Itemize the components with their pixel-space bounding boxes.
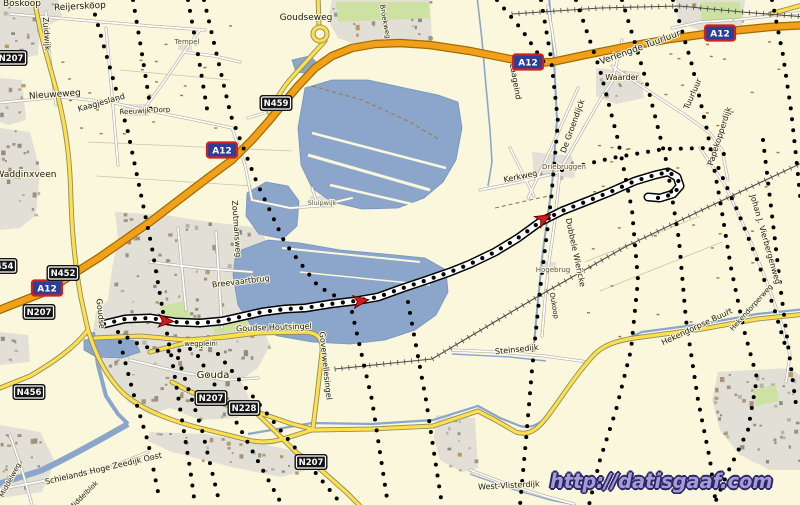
track-point	[628, 200, 632, 204]
track-point	[680, 277, 684, 281]
map-label: wegplein	[184, 340, 216, 348]
track-point	[736, 299, 740, 303]
track-point	[639, 61, 643, 65]
track-point	[139, 194, 143, 198]
track-point	[200, 429, 204, 433]
track-point	[437, 484, 441, 488]
track-point	[293, 446, 297, 450]
track-point	[601, 448, 605, 452]
track-point	[279, 429, 283, 433]
track-point	[551, 74, 555, 78]
track-point	[680, 30, 684, 34]
track-point	[664, 157, 668, 161]
track-point	[628, 353, 632, 357]
track-point	[406, 300, 410, 304]
track-point	[193, 408, 197, 412]
track-point	[724, 234, 728, 238]
track-point	[367, 385, 371, 389]
track-point	[769, 299, 773, 303]
svg-text:A12: A12	[37, 284, 57, 294]
track-point	[731, 277, 735, 281]
track-point	[152, 258, 156, 262]
track-point	[768, 193, 772, 197]
track-point	[635, 152, 639, 156]
track-point	[145, 345, 149, 349]
track-point	[794, 400, 798, 404]
track-point	[135, 341, 139, 345]
map-label: Tempel	[174, 38, 200, 46]
track-point	[245, 440, 249, 444]
track-point	[267, 207, 271, 211]
svg-text:N207: N207	[0, 54, 24, 64]
track-point	[791, 378, 795, 382]
road-shield-N207: N207	[0, 50, 28, 66]
track-point	[281, 237, 285, 241]
track-point	[143, 74, 147, 78]
track-point	[518, 501, 522, 505]
track-point	[205, 450, 209, 454]
track-point	[713, 494, 717, 498]
map-label: Waarder	[605, 73, 639, 82]
track-point	[96, 23, 100, 27]
track-point	[632, 320, 636, 324]
track-point	[544, 238, 548, 242]
track-point	[180, 418, 184, 422]
track-point	[552, 85, 556, 89]
track-point	[190, 20, 194, 24]
track-point	[142, 63, 146, 67]
track-point	[370, 396, 374, 400]
track-point	[214, 52, 218, 56]
track-point	[550, 184, 554, 188]
track-point	[550, 63, 554, 67]
track-point	[145, 85, 149, 89]
map-svg: BoskoopReijerskoopZuidwijkNieuwewegKaagj…	[0, 0, 800, 505]
track-point	[626, 19, 630, 23]
track-point	[323, 288, 327, 292]
track-point	[102, 44, 106, 48]
track-point	[138, 414, 142, 418]
track-point	[418, 365, 422, 369]
track-point	[196, 354, 200, 358]
track-point	[623, 9, 627, 13]
track-point	[431, 441, 435, 445]
track-point	[365, 374, 369, 378]
track-point	[169, 353, 173, 357]
track-point	[543, 249, 547, 253]
track-point	[176, 356, 180, 360]
track-point	[152, 468, 156, 472]
track-point	[216, 493, 220, 497]
track-point	[783, 324, 787, 328]
track-point	[531, 358, 535, 362]
track-point	[208, 461, 212, 465]
track-point	[722, 223, 726, 227]
track-point	[509, 15, 513, 19]
track-point	[674, 9, 678, 13]
track-point	[198, 63, 202, 67]
track-point	[782, 313, 786, 317]
track-point	[762, 149, 766, 153]
track-point	[171, 364, 175, 368]
track-point	[624, 154, 628, 158]
track-point	[748, 417, 752, 421]
track-point	[725, 186, 729, 190]
track-point	[203, 440, 207, 444]
map-label: Goudseweg	[280, 13, 333, 23]
track-point	[759, 268, 763, 272]
track-point	[791, 128, 795, 132]
track-point	[525, 424, 529, 428]
track-point	[683, 310, 687, 314]
track-point	[205, 106, 209, 110]
track-point	[704, 440, 708, 444]
track-point	[789, 367, 793, 371]
track-point	[213, 483, 217, 487]
track-point	[439, 495, 443, 499]
track-point	[782, 63, 786, 67]
track-point	[197, 419, 201, 423]
track-point	[196, 52, 200, 56]
track-point	[631, 331, 635, 335]
track-point	[203, 96, 207, 100]
track-point	[774, 20, 778, 24]
track-point	[541, 9, 545, 13]
track-point	[796, 172, 800, 176]
track-point	[321, 480, 325, 484]
track-point	[622, 167, 626, 171]
track-point	[124, 361, 128, 365]
track-point	[524, 435, 528, 439]
track-point	[200, 74, 204, 78]
track-point	[175, 386, 179, 390]
track-point	[530, 369, 534, 373]
track-point	[612, 124, 616, 128]
track-point	[754, 374, 758, 378]
track-point	[785, 335, 789, 339]
track-point	[792, 139, 796, 143]
track-point	[773, 309, 777, 313]
svg-text:N459: N459	[264, 99, 289, 109]
track-point	[251, 449, 255, 453]
track-point	[678, 255, 682, 259]
track-point	[683, 40, 687, 44]
track-point	[588, 40, 592, 44]
track-point	[416, 354, 420, 358]
track-point	[265, 412, 269, 416]
track-point	[697, 93, 701, 97]
track-point	[116, 330, 120, 334]
track-point	[653, 114, 657, 118]
track-point	[189, 473, 193, 477]
track-point	[192, 30, 196, 34]
track-point	[770, 214, 774, 218]
map-label: Driebruggen	[542, 163, 586, 171]
track-point	[202, 364, 206, 368]
track-point	[603, 158, 607, 162]
track-point	[690, 61, 694, 65]
track-point	[634, 298, 638, 302]
track-point	[626, 189, 630, 193]
road-shield-N207: N207	[23, 304, 56, 320]
track-point	[256, 459, 260, 463]
track-point	[244, 386, 248, 390]
track-point	[784, 74, 788, 78]
track-point	[161, 310, 165, 314]
track-point	[605, 437, 609, 441]
track-point	[608, 427, 612, 431]
track-point	[251, 395, 255, 399]
track-point	[137, 183, 141, 187]
track-point	[238, 136, 242, 140]
track-point	[427, 419, 431, 423]
watermark: http://datisgaaf.com	[550, 469, 793, 493]
track-point	[160, 302, 164, 306]
track-point	[545, 227, 549, 231]
track-point	[554, 140, 558, 144]
track-point	[328, 488, 332, 492]
track-point	[673, 211, 677, 215]
track-point	[529, 380, 533, 384]
track-point	[132, 393, 136, 397]
track-point	[156, 280, 160, 284]
track-point	[601, 82, 605, 86]
track-point	[240, 430, 244, 434]
track-point	[701, 146, 705, 150]
track-point	[536, 304, 540, 308]
track-point	[526, 413, 530, 417]
map-label: Sluipwijk	[308, 199, 337, 207]
track-point	[272, 420, 276, 424]
track-point	[502, 6, 506, 10]
track-point	[587, 501, 591, 505]
track-point	[185, 451, 189, 455]
track-point	[147, 96, 151, 100]
track-point	[376, 439, 380, 443]
track-point	[105, 55, 109, 59]
track-point	[631, 221, 635, 225]
track-point	[755, 257, 759, 261]
map-label: Hogebrug	[536, 266, 571, 274]
road-shield-A12: A12	[32, 281, 62, 296]
track-point	[774, 247, 778, 251]
track-point	[521, 468, 525, 472]
track-point	[301, 264, 305, 268]
track-point	[523, 446, 527, 450]
track-point	[766, 182, 770, 186]
track-point	[717, 191, 721, 195]
track-point	[787, 95, 791, 99]
track-point	[230, 116, 234, 120]
track-point	[751, 363, 755, 367]
track-point	[720, 212, 724, 216]
track-point	[156, 349, 160, 353]
track-point	[693, 375, 697, 379]
road-shield-N456: N456	[13, 384, 46, 400]
track-point	[523, 32, 527, 36]
track-point	[141, 204, 145, 208]
track-point	[294, 255, 298, 259]
map-label: Boskoop	[3, 0, 41, 9]
track-point	[553, 96, 557, 100]
track-point	[527, 402, 531, 406]
track-point	[99, 34, 103, 38]
track-point	[373, 418, 377, 422]
track-point	[114, 87, 118, 91]
track-point	[676, 233, 680, 237]
track-point	[375, 428, 379, 432]
track-point	[702, 115, 706, 119]
track-point	[133, 9, 137, 13]
track-point	[381, 472, 385, 476]
track-point	[166, 349, 170, 353]
track-point	[158, 291, 162, 295]
track-point	[183, 377, 187, 381]
track-point	[599, 71, 603, 75]
track-point	[314, 471, 318, 475]
track-point	[154, 478, 158, 482]
track-point	[634, 254, 638, 258]
track-point	[355, 331, 359, 335]
track-point	[737, 448, 741, 452]
track-point	[792, 389, 796, 393]
track-point	[614, 155, 618, 159]
track-point	[732, 457, 736, 461]
track-point	[771, 225, 775, 229]
track-point	[751, 247, 755, 251]
track-point	[380, 461, 384, 465]
track-point	[150, 248, 154, 252]
track-point	[707, 136, 711, 140]
track-point	[776, 30, 780, 34]
track-point	[779, 41, 783, 45]
track-point	[615, 406, 619, 410]
track-point	[661, 146, 665, 150]
track-point	[422, 387, 426, 391]
track-point	[746, 428, 750, 432]
track-point	[727, 256, 731, 260]
track-point	[682, 299, 686, 303]
track-point	[201, 85, 205, 89]
track-point	[548, 52, 552, 56]
track-point	[702, 429, 706, 433]
track-point	[534, 326, 538, 330]
track-point	[246, 157, 250, 161]
road-shield-N207: N207	[195, 390, 228, 406]
track-point	[192, 494, 196, 498]
track-point	[242, 147, 246, 151]
track-point	[671, 200, 675, 204]
track-point	[642, 72, 646, 76]
track-point	[108, 66, 112, 70]
track-point	[420, 376, 424, 380]
track-point	[743, 227, 747, 231]
track-point	[674, 222, 678, 226]
track-point	[788, 356, 792, 360]
track-point	[667, 179, 671, 183]
track-point	[545, 31, 549, 35]
track-point	[781, 52, 785, 56]
track-point	[765, 171, 769, 175]
track-point	[592, 50, 596, 54]
track-point	[286, 437, 290, 441]
svg-text:N207: N207	[27, 308, 52, 318]
track-point	[539, 282, 543, 286]
road-shield-A12: A12	[513, 55, 543, 70]
track-point	[145, 435, 149, 439]
track-point	[679, 147, 683, 151]
track-point	[681, 288, 685, 292]
track-point	[543, 20, 547, 24]
track-point	[190, 398, 194, 402]
track-point	[362, 364, 366, 368]
track-point	[111, 76, 115, 80]
svg-text:N207: N207	[299, 458, 324, 468]
track-point	[261, 469, 265, 473]
svg-text:N207: N207	[199, 394, 224, 404]
track-point	[533, 337, 537, 341]
track-point	[636, 276, 640, 280]
track-point	[620, 156, 624, 160]
track-point	[230, 369, 234, 373]
track-point	[156, 489, 160, 493]
track-point	[688, 342, 692, 346]
svg-text:N452: N452	[51, 269, 76, 279]
track-point	[776, 320, 780, 324]
track-point	[764, 160, 768, 164]
track-point	[694, 386, 698, 390]
track-point	[581, 19, 585, 23]
track-point	[234, 126, 238, 130]
track-point	[620, 385, 624, 389]
track-point	[147, 446, 151, 450]
track-point	[216, 352, 220, 356]
track-point	[263, 197, 267, 201]
track-point	[188, 9, 192, 13]
track-point	[429, 430, 433, 434]
track-point	[314, 281, 318, 285]
map-canvas[interactable]: BoskoopReijerskoopZuidwijkNieuwewegKaagj…	[0, 0, 800, 505]
track-point	[535, 315, 539, 319]
track-point	[734, 206, 738, 210]
track-point	[553, 151, 557, 155]
track-point	[646, 150, 650, 154]
track-point	[713, 169, 717, 173]
track-point	[212, 41, 216, 45]
track-point	[167, 342, 171, 346]
track-point	[529, 41, 533, 45]
svg-text:A12: A12	[518, 58, 538, 68]
track-point	[548, 205, 552, 209]
track-point	[722, 152, 726, 156]
track-point	[307, 273, 311, 277]
track-point	[726, 245, 730, 249]
track-point	[772, 9, 776, 13]
track-point	[633, 243, 637, 247]
track-point	[227, 105, 231, 109]
map-label: Waddinxveen	[0, 170, 56, 180]
track-point	[436, 473, 440, 477]
track-point	[752, 395, 756, 399]
track-point	[668, 147, 672, 151]
track-point	[538, 293, 542, 297]
track-point	[716, 166, 720, 170]
svg-text:A12: A12	[212, 146, 232, 156]
track-point	[267, 478, 271, 482]
track-point	[213, 383, 217, 387]
track-point	[204, 9, 208, 13]
track-point	[704, 126, 708, 130]
